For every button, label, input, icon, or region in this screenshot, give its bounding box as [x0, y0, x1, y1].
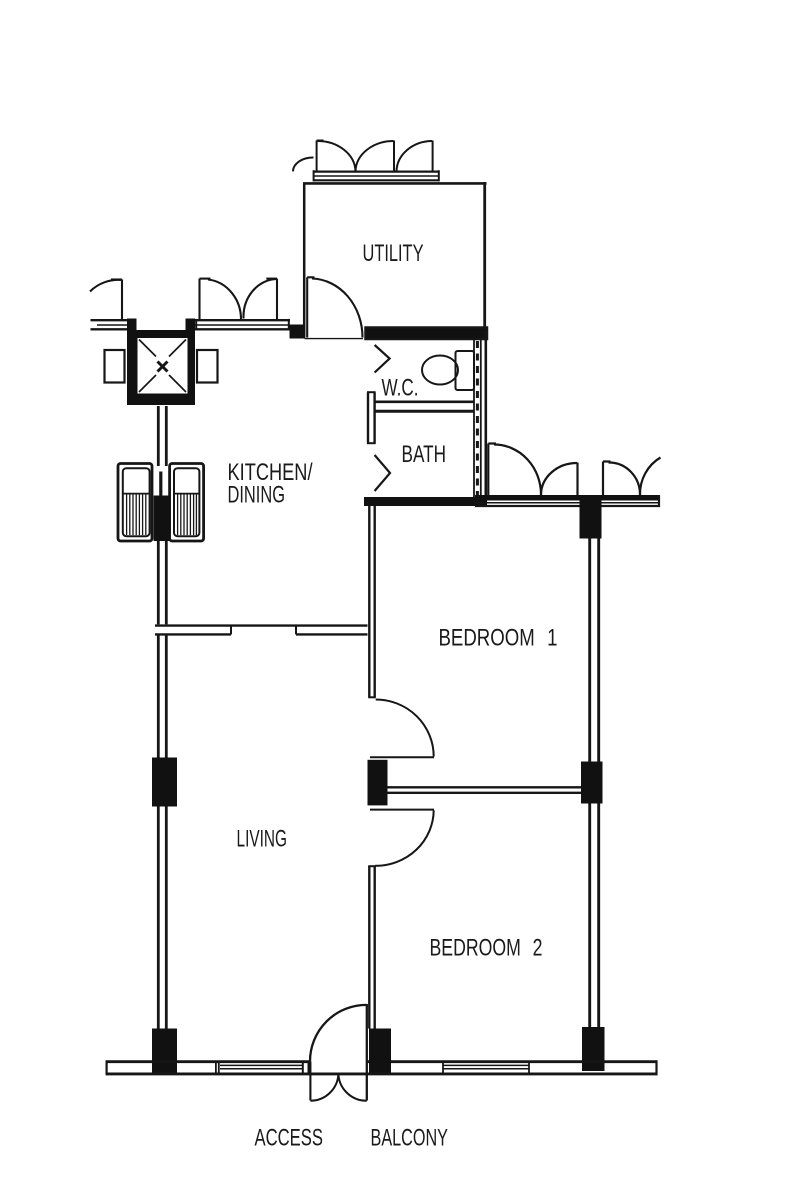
- svg-text:W.C.: W.C.: [382, 375, 419, 402]
- svg-text:BALCONY: BALCONY: [371, 1125, 449, 1152]
- svg-text:BEDROOM 1: BEDROOM 1: [439, 625, 558, 652]
- svg-text:DINING: DINING: [228, 482, 286, 509]
- svg-text:LIVING: LIVING: [237, 826, 288, 853]
- svg-text:BATH: BATH: [402, 441, 447, 468]
- svg-text:ACCESS: ACCESS: [255, 1125, 324, 1152]
- svg-text:BEDROOM 2: BEDROOM 2: [430, 935, 543, 962]
- svg-text:UTILITY: UTILITY: [363, 240, 424, 267]
